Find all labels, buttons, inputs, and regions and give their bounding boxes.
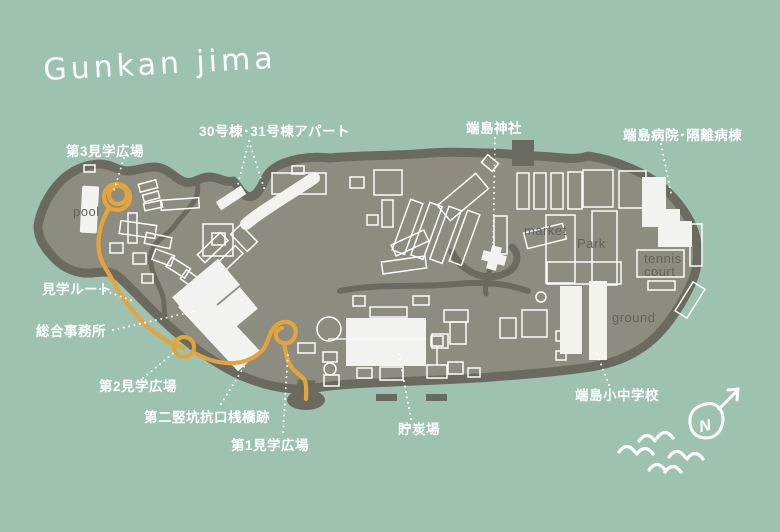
label-school: 端島小中学校 xyxy=(575,387,659,403)
label-market: market xyxy=(524,223,567,238)
label-hospital: 端島病院･隔離病棟 xyxy=(623,127,742,143)
label-coal-yard: 貯炭場 xyxy=(398,421,440,437)
breakwater-dash xyxy=(426,394,447,401)
breakwater-dash xyxy=(376,394,397,401)
coal-yard-area xyxy=(346,318,426,366)
label-pool: pool xyxy=(73,204,100,219)
label-apartments: 30号棟･31号棟アパート xyxy=(199,123,350,139)
map-canvas: Gunkan jima 第3見学広場 30号棟･31号棟アパート 端島神社 端島… xyxy=(0,0,780,532)
label-route: 見学ルート xyxy=(41,281,112,297)
label-plaza3: 第3見学広場 xyxy=(66,143,144,159)
label-shaft-pier: 第二竪坑抗口桟橋跡 xyxy=(144,409,270,425)
label-court: court xyxy=(644,264,675,279)
label-shrine: 端島神社 xyxy=(466,120,522,136)
label-park: Park xyxy=(577,236,606,251)
school-building xyxy=(560,286,582,354)
school-building xyxy=(589,281,607,360)
label-ground: ground xyxy=(612,310,655,325)
label-office: 総合事務所 xyxy=(36,323,106,339)
gunkanjima-map: Gunkan jima 第3見学広場 30号棟･31号棟アパート 端島神社 端島… xyxy=(0,0,780,532)
north-pier xyxy=(512,140,534,166)
label-plaza2: 第2見学広場 xyxy=(99,378,177,394)
label-plaza1: 第1見学広場 xyxy=(231,437,309,453)
